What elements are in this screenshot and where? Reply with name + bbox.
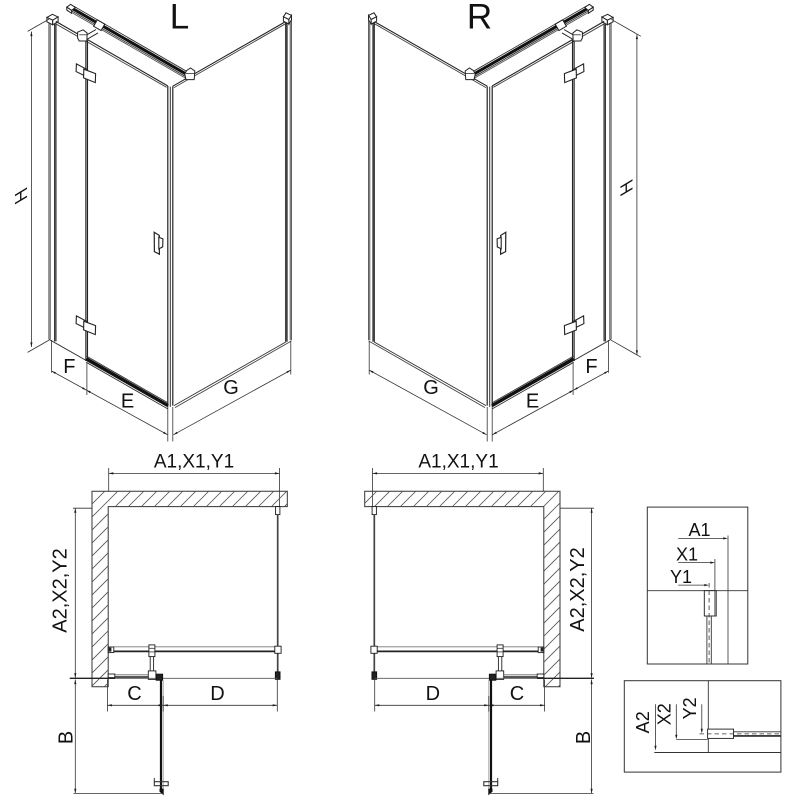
svg-text:A1,X1,Y1: A1,X1,Y1 xyxy=(154,452,234,473)
svg-text:R: R xyxy=(467,0,492,37)
svg-text:A2,X2,Y2: A2,X2,Y2 xyxy=(567,547,589,632)
svg-text:A2,X2,Y2: A2,X2,Y2 xyxy=(50,548,72,633)
svg-text:G: G xyxy=(223,377,239,399)
svg-text:C: C xyxy=(127,683,141,705)
svg-text:X2: X2 xyxy=(655,703,675,725)
svg-text:B: B xyxy=(573,731,595,744)
svg-text:D: D xyxy=(210,683,224,705)
svg-text:F: F xyxy=(63,356,75,378)
svg-text:E: E xyxy=(526,391,539,413)
svg-text:B: B xyxy=(56,731,78,744)
svg-text:E: E xyxy=(121,391,134,413)
svg-text:C: C xyxy=(510,683,524,705)
svg-text:Y2: Y2 xyxy=(680,697,700,719)
svg-text:X1: X1 xyxy=(676,544,698,564)
svg-text:F: F xyxy=(585,356,597,378)
svg-text:D: D xyxy=(426,683,440,705)
svg-text:L: L xyxy=(170,0,189,37)
svg-text:A1,X1,Y1: A1,X1,Y1 xyxy=(418,452,498,473)
svg-text:Y1: Y1 xyxy=(670,567,692,587)
svg-text:A2: A2 xyxy=(633,711,653,733)
svg-text:A1: A1 xyxy=(688,520,710,540)
svg-text:G: G xyxy=(423,377,439,399)
